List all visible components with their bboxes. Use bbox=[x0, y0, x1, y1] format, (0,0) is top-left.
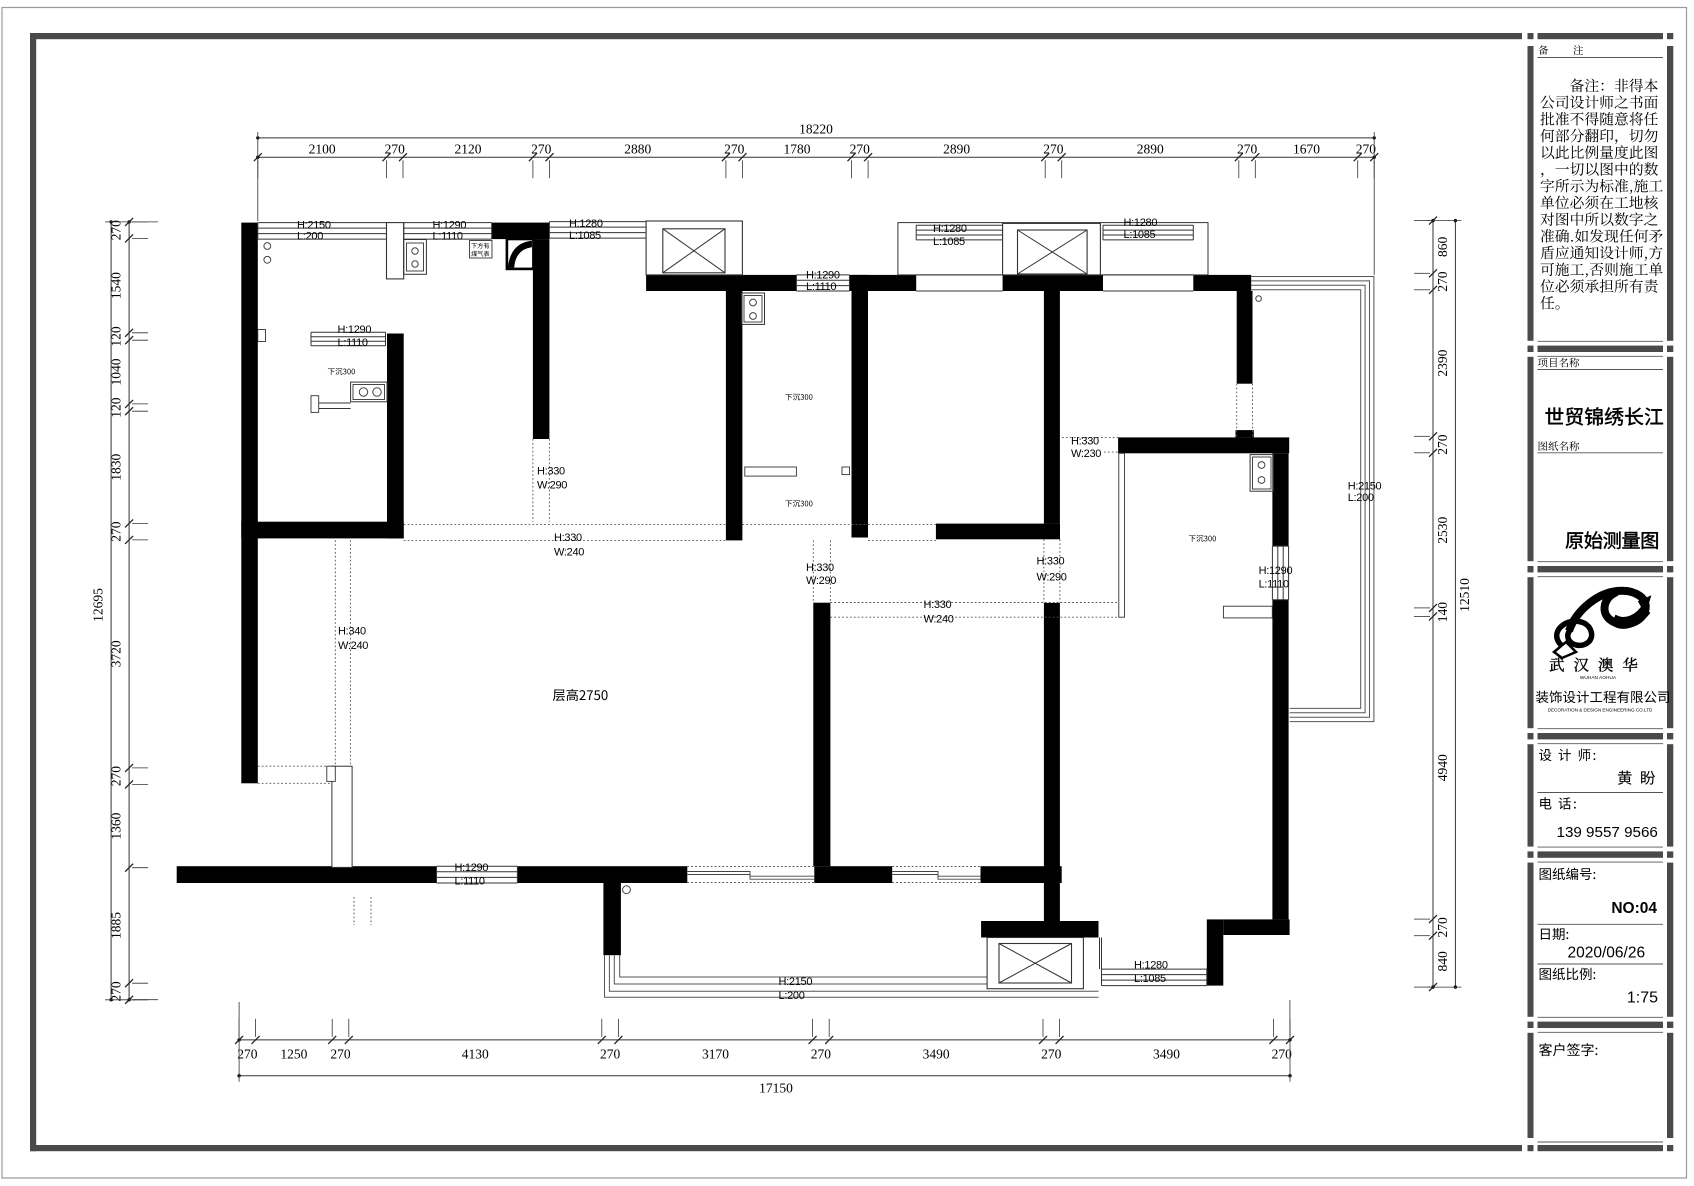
svg-text:1250: 1250 bbox=[280, 1047, 307, 1062]
svg-text:270: 270 bbox=[531, 142, 552, 157]
svg-text:270: 270 bbox=[237, 1047, 258, 1062]
svg-text:140: 140 bbox=[1435, 602, 1450, 623]
svg-text:L:1110: L:1110 bbox=[1259, 579, 1289, 591]
svg-text:270: 270 bbox=[1272, 1047, 1293, 1062]
svg-text:2880: 2880 bbox=[624, 142, 651, 157]
svg-text:H:1290: H:1290 bbox=[455, 862, 489, 874]
svg-text:18220: 18220 bbox=[799, 122, 833, 137]
svg-text:2890: 2890 bbox=[1137, 142, 1164, 157]
svg-text:270: 270 bbox=[850, 142, 871, 157]
svg-text:H:1280: H:1280 bbox=[1134, 960, 1168, 972]
svg-text:W:240: W:240 bbox=[554, 547, 584, 559]
svg-text:L:1085: L:1085 bbox=[933, 236, 965, 248]
svg-text:H:1290: H:1290 bbox=[806, 269, 840, 281]
svg-text:H:330: H:330 bbox=[806, 562, 834, 574]
svg-text:W:240: W:240 bbox=[924, 614, 954, 626]
svg-text:H:1290: H:1290 bbox=[338, 324, 372, 336]
svg-text:WUHAN AOHUA: WUHAN AOHUA bbox=[1580, 675, 1617, 681]
svg-text:W:290: W:290 bbox=[537, 480, 567, 492]
svg-text:H:2150: H:2150 bbox=[1348, 481, 1382, 493]
svg-text:840: 840 bbox=[1435, 951, 1450, 972]
svg-text:L:1110: L:1110 bbox=[338, 337, 368, 349]
svg-text:270: 270 bbox=[1435, 917, 1450, 938]
svg-text:W:290: W:290 bbox=[806, 575, 836, 587]
svg-text:H:1280: H:1280 bbox=[1124, 217, 1158, 229]
svg-text:860: 860 bbox=[1435, 237, 1450, 258]
svg-text:3490: 3490 bbox=[1153, 1047, 1180, 1062]
svg-text:L:1110: L:1110 bbox=[433, 230, 463, 242]
svg-text:270: 270 bbox=[724, 142, 745, 157]
svg-text:W:230: W:230 bbox=[1071, 448, 1101, 460]
svg-text:4130: 4130 bbox=[462, 1047, 489, 1062]
svg-text:1670: 1670 bbox=[1293, 142, 1320, 157]
svg-text:270: 270 bbox=[1435, 434, 1450, 455]
svg-text:H:1280: H:1280 bbox=[933, 223, 967, 235]
svg-text:L:1085: L:1085 bbox=[569, 230, 601, 242]
svg-text:12510: 12510 bbox=[1457, 578, 1472, 612]
svg-text:L:1085: L:1085 bbox=[1134, 973, 1166, 985]
svg-text:H:330: H:330 bbox=[1037, 556, 1065, 568]
svg-text:2890: 2890 bbox=[943, 142, 970, 157]
svg-text:L:1110: L:1110 bbox=[455, 876, 485, 888]
svg-text:2020/06/26: 2020/06/26 bbox=[1568, 945, 1646, 962]
svg-text:L:1110: L:1110 bbox=[806, 281, 836, 293]
svg-text:2100: 2100 bbox=[309, 142, 336, 157]
svg-text:L:200: L:200 bbox=[297, 231, 323, 243]
svg-text:270: 270 bbox=[1043, 142, 1064, 157]
svg-text:W:240: W:240 bbox=[338, 640, 368, 652]
svg-text:DECORATION & DESIGN ENGINEERIN: DECORATION & DESIGN ENGINEERING CO.LTD bbox=[1548, 708, 1653, 713]
svg-text:270: 270 bbox=[811, 1047, 832, 1062]
svg-text:270: 270 bbox=[1435, 271, 1450, 292]
svg-text:270: 270 bbox=[1356, 142, 1377, 157]
svg-text:L:200: L:200 bbox=[779, 990, 805, 1002]
svg-text:2530: 2530 bbox=[1435, 517, 1450, 544]
svg-text:270: 270 bbox=[1237, 142, 1258, 157]
svg-text:1:75: 1:75 bbox=[1627, 990, 1658, 1007]
svg-text:H:330: H:330 bbox=[537, 466, 565, 478]
svg-text:H:1290: H:1290 bbox=[1259, 565, 1293, 577]
svg-text:L:200: L:200 bbox=[1348, 492, 1374, 504]
svg-text:H:330: H:330 bbox=[1071, 436, 1099, 448]
svg-text:NO:04: NO:04 bbox=[1611, 900, 1657, 917]
svg-text:4940: 4940 bbox=[1435, 754, 1450, 781]
svg-text:270: 270 bbox=[330, 1047, 351, 1062]
svg-text:2120: 2120 bbox=[455, 142, 482, 157]
svg-text:270: 270 bbox=[385, 142, 406, 157]
svg-text:139 9557 9566: 139 9557 9566 bbox=[1557, 824, 1658, 841]
svg-text:H:1280: H:1280 bbox=[569, 218, 603, 230]
svg-text:W:290: W:290 bbox=[1037, 572, 1067, 584]
svg-text:270: 270 bbox=[600, 1047, 621, 1062]
svg-text:3170: 3170 bbox=[702, 1047, 729, 1062]
svg-text:12695: 12695 bbox=[91, 588, 106, 622]
svg-text:270: 270 bbox=[1041, 1047, 1062, 1062]
svg-text:H:340: H:340 bbox=[338, 626, 366, 638]
svg-text:17150: 17150 bbox=[759, 1081, 793, 1096]
svg-text:H:2150: H:2150 bbox=[779, 976, 813, 988]
svg-text:2390: 2390 bbox=[1435, 349, 1450, 376]
svg-text:H:330: H:330 bbox=[924, 599, 952, 611]
svg-text:3490: 3490 bbox=[923, 1047, 950, 1062]
svg-text:1780: 1780 bbox=[784, 142, 811, 157]
svg-text:L:1085: L:1085 bbox=[1124, 229, 1156, 241]
svg-text:H:330: H:330 bbox=[554, 532, 582, 544]
